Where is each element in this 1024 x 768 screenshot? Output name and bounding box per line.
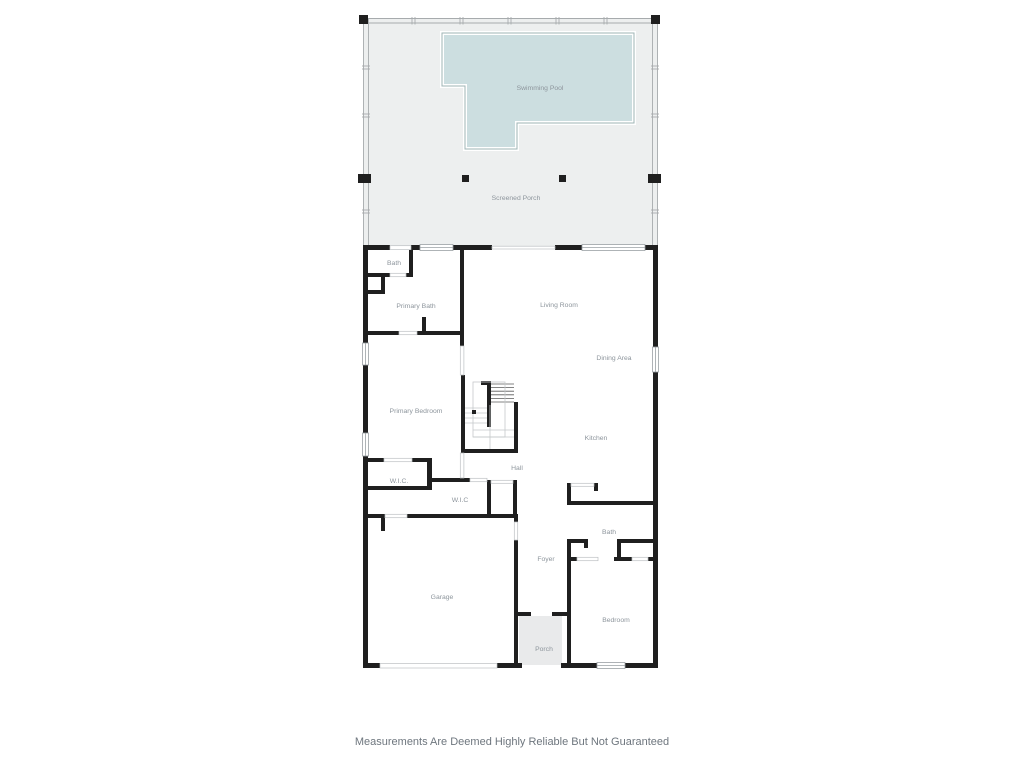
- room-label-porch: Porch: [535, 646, 553, 653]
- room-label-wic-left: W.I.C.: [390, 478, 409, 485]
- stair-newel-dot: [472, 410, 476, 414]
- room-label-foyer: Foyer: [537, 556, 555, 563]
- room-label-bedroom: Bedroom: [602, 617, 630, 624]
- room-label-kitchen: Kitchen: [585, 435, 608, 442]
- room-label-bath-upper: Bath: [387, 260, 401, 267]
- stair-treads-upper: [491, 384, 514, 402]
- room-label-hall: Hall: [511, 465, 523, 472]
- room-label-screened-porch: Screened Porch: [492, 195, 541, 202]
- room-label-garage: Garage: [431, 594, 454, 601]
- disclaimer-text: Measurements Are Deemed Highly Reliable …: [355, 736, 669, 748]
- room-label-swimming-pool: Swimming Pool: [517, 85, 564, 92]
- floor-plan-page: Swimming Pool Screened Porch: [0, 0, 1024, 768]
- floor-plan-svg: Swimming Pool Screened Porch: [0, 0, 1024, 768]
- room-label-bath-lower: Bath: [602, 529, 616, 536]
- room-label-wic-mid: W.I.C: [452, 497, 469, 504]
- room-label-living-room: Living Room: [540, 302, 578, 309]
- screened-porch: Swimming Pool Screened Porch: [358, 15, 661, 247]
- garage-door: [380, 664, 497, 669]
- entry-porch-floor: [519, 616, 562, 665]
- room-label-primary-bedroom: Primary Bedroom: [390, 408, 443, 415]
- room-label-dining-area: Dining Area: [596, 355, 631, 362]
- room-label-primary-bath: Primary Bath: [396, 303, 436, 310]
